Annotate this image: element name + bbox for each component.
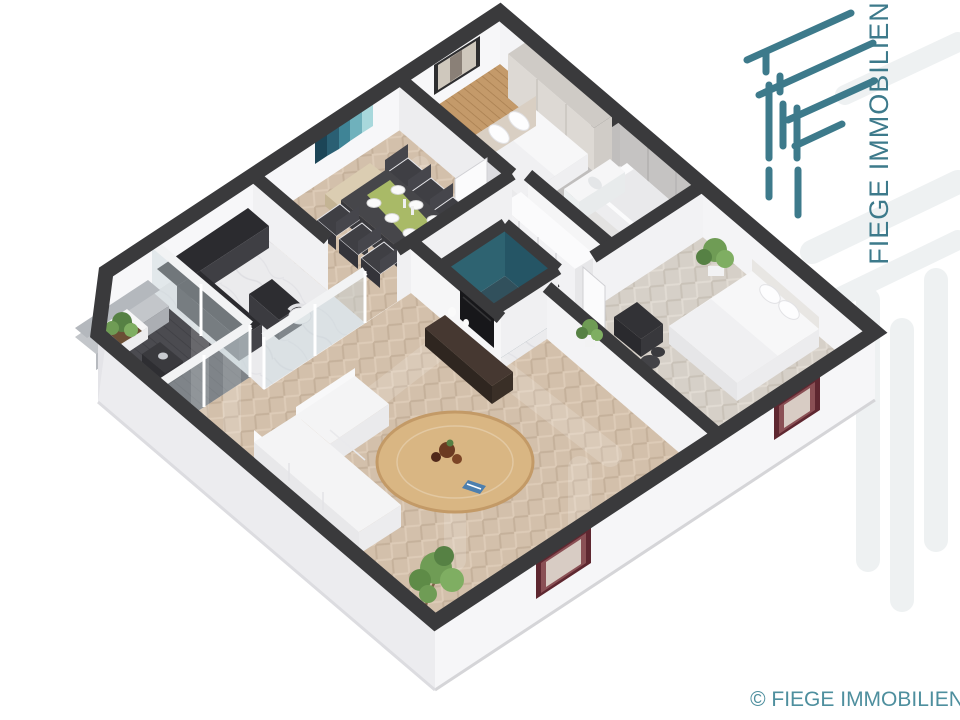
logo-text: FIEGE IMMOBILIEN	[864, 1, 894, 265]
round-rug	[377, 412, 533, 512]
floorplan-page: FIEGE IMMOBILIEN © FIEGE IMMOBILIEN	[0, 0, 960, 720]
vase	[448, 307, 456, 317]
candle	[403, 199, 406, 208]
vase	[463, 319, 469, 327]
copyright-text: © FIEGE IMMOBILIEN	[750, 688, 960, 711]
candle	[411, 206, 414, 215]
floorplan-render: FIEGE IMMOBILIEN © FIEGE IMMOBILIEN	[0, 0, 960, 720]
